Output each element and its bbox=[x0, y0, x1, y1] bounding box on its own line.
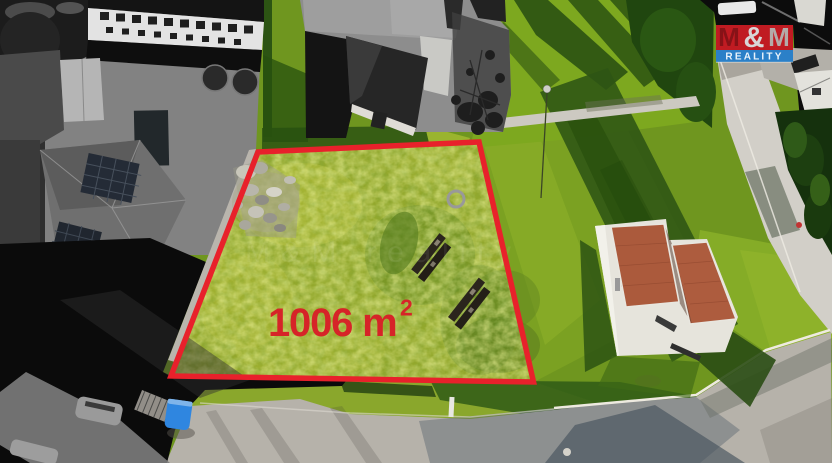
svg-text:1006 m: 1006 m bbox=[268, 301, 396, 345]
svg-text:M: M bbox=[768, 22, 790, 52]
svg-text:REALITY: REALITY bbox=[725, 52, 783, 63]
svg-text:M: M bbox=[718, 22, 740, 52]
svg-text:&: & bbox=[744, 22, 765, 54]
svg-text:2: 2 bbox=[400, 295, 413, 321]
